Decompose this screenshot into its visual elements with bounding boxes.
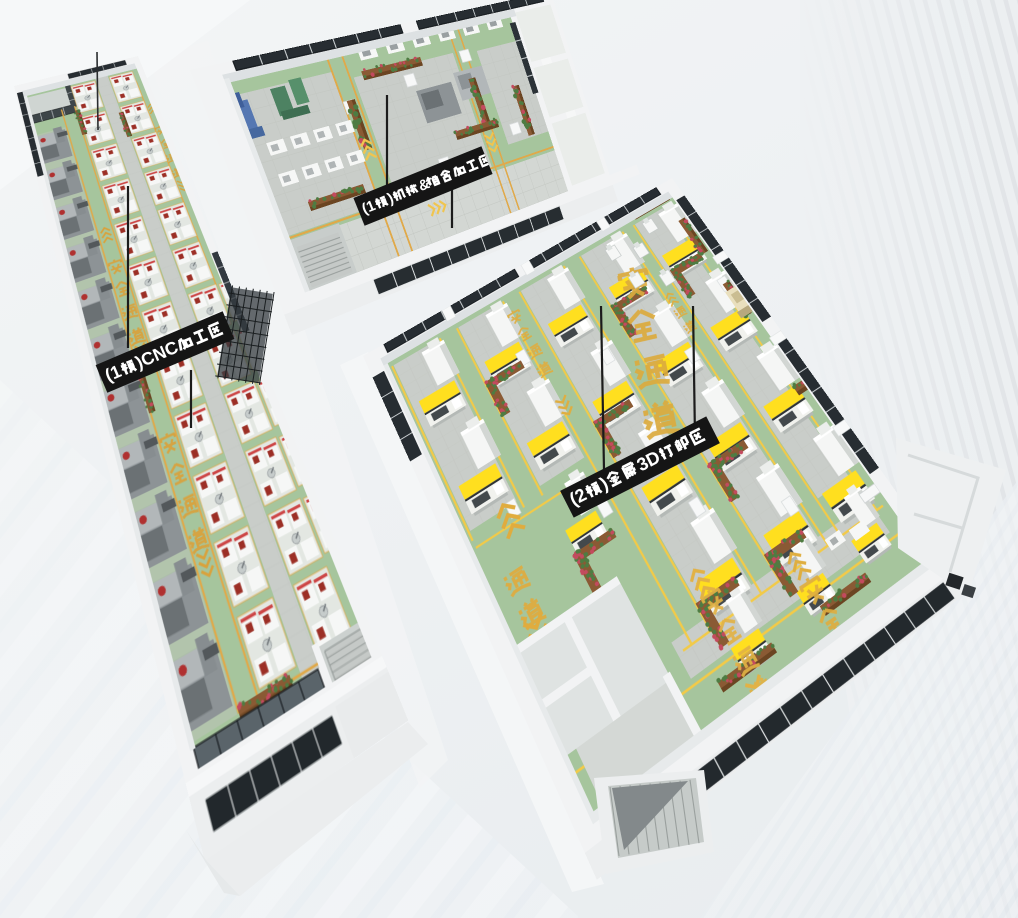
svg-text:(2: (2 (566, 484, 590, 510)
svg-text:3D: 3D (633, 446, 663, 475)
svg-text:(1: (1 (102, 361, 124, 386)
